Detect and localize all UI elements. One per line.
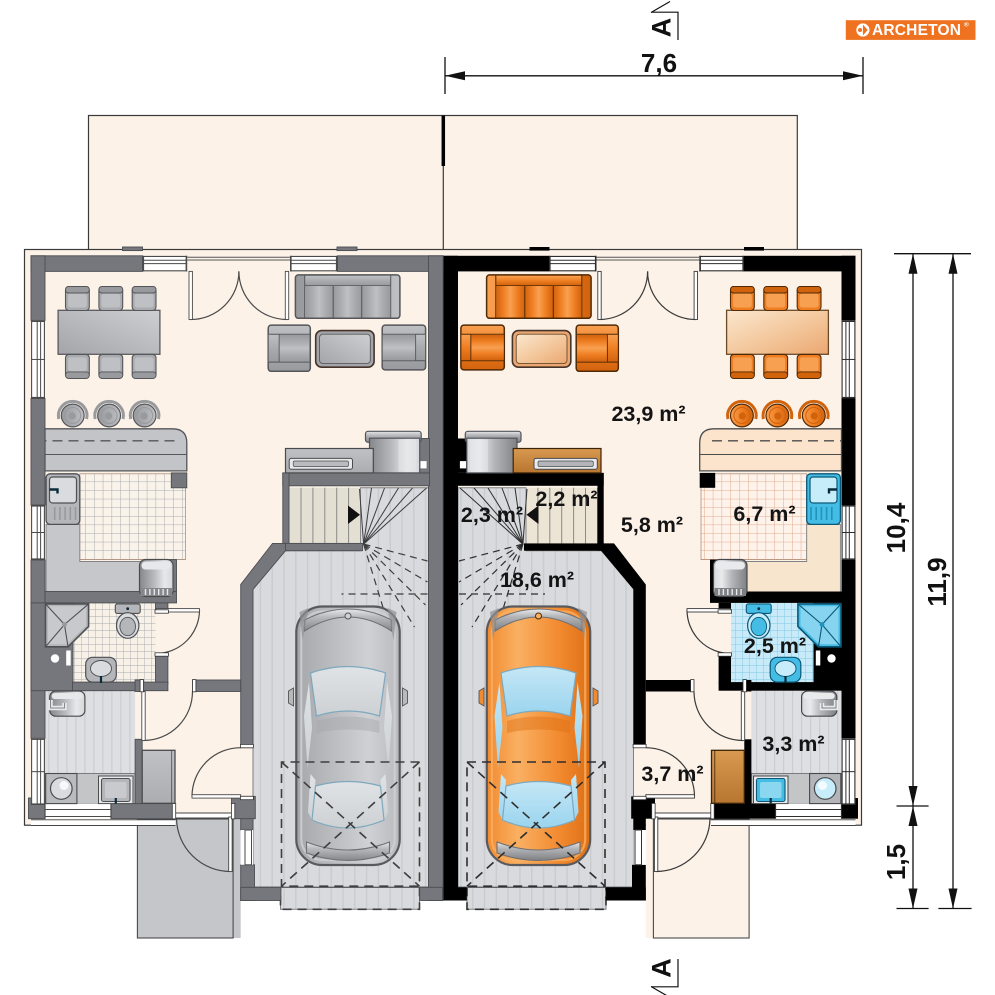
svg-text:11,9: 11,9: [922, 557, 952, 606]
svg-text:18,6 m²: 18,6 m²: [500, 568, 574, 592]
svg-text:2,2 m²: 2,2 m²: [535, 487, 597, 511]
svg-text:1,5: 1,5: [881, 844, 911, 880]
svg-text:3,7 m²: 3,7 m²: [641, 762, 703, 786]
svg-text:5,8 m²: 5,8 m²: [621, 513, 683, 537]
svg-text:6,7 m²: 6,7 m²: [733, 502, 795, 526]
svg-text:7,6: 7,6: [641, 48, 677, 78]
svg-text:2,3 m²: 2,3 m²: [461, 503, 523, 527]
svg-text:®: ®: [964, 21, 969, 29]
svg-text:23,9 m²: 23,9 m²: [611, 402, 685, 426]
svg-text:A: A: [647, 958, 677, 978]
svg-text:10,4: 10,4: [881, 502, 911, 553]
svg-text:3,3 m²: 3,3 m²: [762, 732, 824, 756]
svg-text:A: A: [647, 18, 677, 38]
svg-text:ARCHETON: ARCHETON: [872, 22, 961, 39]
svg-text:2,5 m²: 2,5 m²: [744, 634, 806, 658]
